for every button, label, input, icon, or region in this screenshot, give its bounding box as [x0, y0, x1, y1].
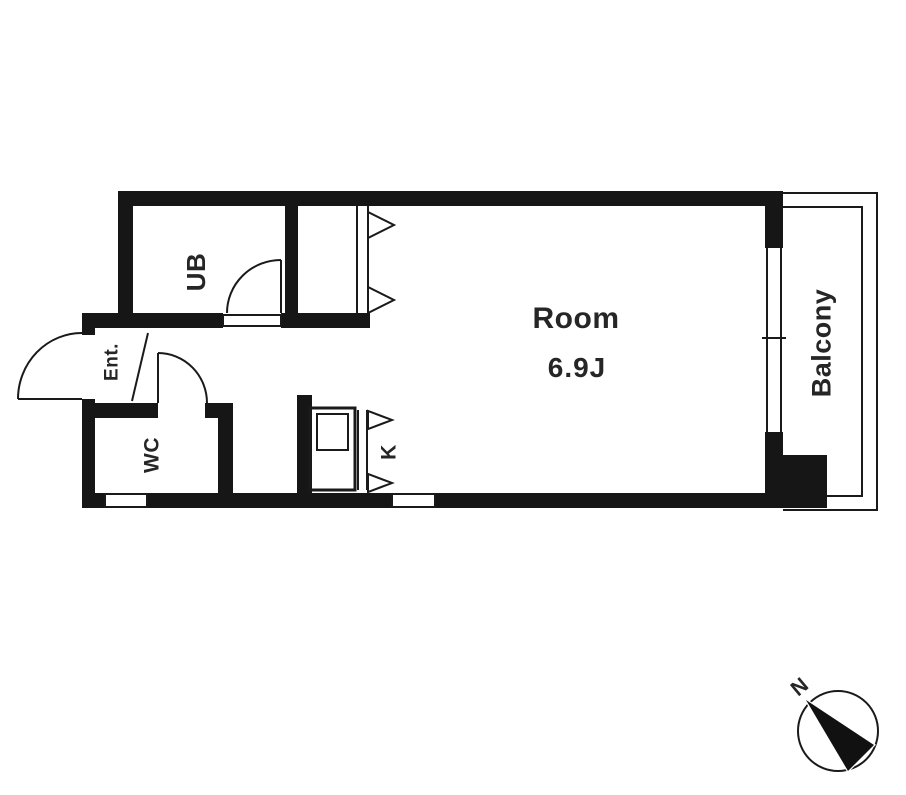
wall-ub-left [118, 191, 133, 327]
kitchen-sink [317, 414, 348, 450]
wall-wc-top-left [82, 403, 158, 418]
wall-mid-right [281, 313, 370, 328]
entrance-step-line [132, 333, 148, 401]
balcony-window [762, 248, 786, 432]
main-room-label: Room [533, 304, 620, 334]
toilet-label: WC [142, 437, 163, 473]
wall-left-upper [82, 313, 95, 335]
wc-door [158, 353, 207, 403]
entrance-door-arc [18, 333, 82, 399]
wc-door-arc [158, 353, 207, 403]
wall-top [118, 191, 783, 206]
ub-door-arc [227, 260, 281, 313]
kitchen-open-marker-bottom [368, 474, 392, 492]
closet-open-marker-top [368, 212, 394, 238]
closet-front [357, 206, 394, 313]
ub-door [223, 260, 281, 326]
kitchen-window [392, 494, 435, 507]
main-room-size: 6.9J [548, 354, 607, 382]
entrance-label: Ent. [103, 343, 122, 381]
wall-right-top [765, 191, 783, 248]
wall-bottom-c [435, 493, 783, 508]
wall-wc-right [218, 403, 233, 508]
walls [82, 191, 827, 508]
wall-bottom-a [82, 493, 105, 508]
wc-window [105, 494, 147, 507]
wall-corner-block [765, 455, 827, 508]
floor-plan: UB Ent. WC K Balcony Room 6.9J N [0, 0, 906, 795]
ub-door-threshold [223, 315, 281, 326]
wall-ub-right [285, 204, 298, 327]
closet-open-marker-bottom [368, 287, 394, 313]
unit-bath-label: UB [183, 253, 209, 292]
wall-mid-left [82, 313, 223, 328]
kitchen-open-marker-top [368, 411, 392, 429]
floor-plan-drawing [0, 0, 906, 795]
balcony-label: Balcony [809, 289, 836, 398]
kitchen-label: K [379, 444, 400, 460]
entrance-door [18, 333, 148, 401]
wall-bottom-b [147, 493, 392, 508]
